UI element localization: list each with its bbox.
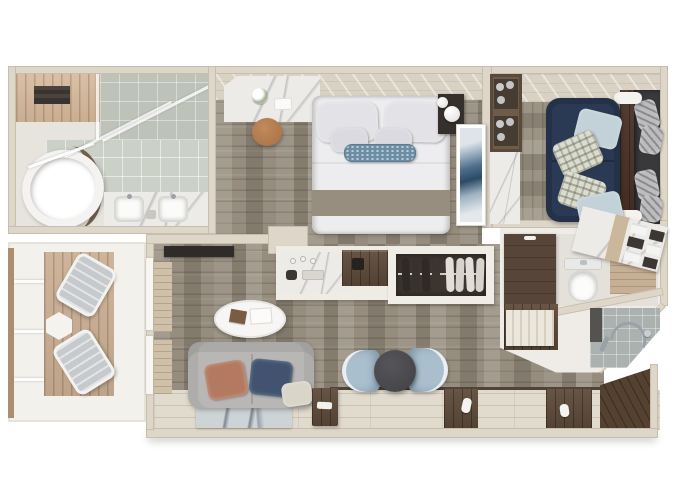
glassware-2 bbox=[506, 81, 514, 89]
coffee-table-magazine bbox=[249, 307, 272, 324]
vanity-book bbox=[274, 98, 293, 111]
counter-glass-1 bbox=[290, 258, 296, 264]
floor-plan-render bbox=[0, 0, 680, 486]
wall-right-lower bbox=[650, 364, 658, 432]
sink-right bbox=[158, 196, 188, 222]
counter-glass-3 bbox=[310, 258, 316, 264]
dining-table bbox=[374, 350, 416, 392]
wall-bathroom-left bbox=[8, 66, 16, 234]
shower-bench bbox=[590, 308, 602, 342]
slippers-2 bbox=[559, 403, 570, 417]
balcony-glass-rail-2 bbox=[14, 330, 44, 333]
towel-dark-2 bbox=[649, 229, 665, 242]
wardrobe bbox=[504, 234, 556, 306]
wall-art bbox=[456, 124, 486, 226]
counter-glass-2 bbox=[300, 256, 306, 262]
window-frame-balcony-2 bbox=[146, 336, 153, 394]
glassware-6 bbox=[497, 133, 505, 141]
pillow-terracotta bbox=[203, 359, 249, 401]
counter-tray bbox=[302, 270, 324, 280]
balcony-glass-rail-1 bbox=[14, 280, 44, 283]
wall-bathroom-bottom bbox=[8, 226, 216, 234]
garment-light-4 bbox=[475, 258, 484, 292]
glassware-1 bbox=[496, 83, 504, 91]
faucet-left bbox=[127, 194, 132, 199]
globe-lamp-large bbox=[444, 106, 460, 122]
bed-runner bbox=[312, 190, 450, 216]
chaise-pillow-4 bbox=[638, 195, 663, 224]
towel-dark-3 bbox=[642, 256, 658, 269]
towel-dark-1 bbox=[627, 236, 645, 250]
wall-bathroom-right bbox=[208, 66, 216, 234]
tv-screen bbox=[164, 246, 234, 257]
towel-white-2 bbox=[623, 250, 641, 264]
vestibule-cabinet bbox=[506, 310, 554, 346]
wall-bottom bbox=[146, 428, 658, 438]
balcony-rail-post bbox=[8, 248, 14, 418]
chaise-armrest-top bbox=[614, 92, 642, 104]
counter-kettle bbox=[286, 270, 297, 280]
toilet-flush-button bbox=[580, 260, 587, 265]
shower-head bbox=[644, 330, 651, 337]
garment-dark-1 bbox=[401, 258, 411, 292]
garment-light-1 bbox=[445, 257, 454, 292]
glassware-3 bbox=[497, 96, 505, 104]
vanity-tray bbox=[146, 210, 156, 219]
bed-accent-pillow bbox=[344, 144, 416, 162]
remote-control bbox=[317, 402, 332, 410]
glassware-shelving bbox=[490, 74, 522, 152]
balcony-glass-rail-3 bbox=[14, 378, 44, 381]
espresso-machine bbox=[352, 258, 364, 270]
toilet-bowl bbox=[568, 270, 598, 302]
towel-white-1 bbox=[630, 222, 648, 236]
towel-white-3 bbox=[645, 243, 661, 256]
globe-lamp-small bbox=[437, 97, 448, 108]
vanity-stool bbox=[252, 118, 282, 146]
window-console bbox=[620, 90, 634, 224]
window-bench-1 bbox=[154, 262, 172, 332]
ceiling-vent bbox=[34, 86, 70, 104]
garment-dark-2 bbox=[411, 257, 420, 292]
marble-column bbox=[490, 152, 520, 224]
garment-light-2 bbox=[455, 258, 464, 292]
duvet-fold-line bbox=[312, 162, 450, 164]
wall-art-canvas bbox=[460, 128, 482, 222]
sink-left bbox=[114, 196, 144, 222]
wall-top bbox=[8, 66, 668, 74]
vanity-flowers bbox=[252, 88, 268, 104]
glassware-4 bbox=[496, 120, 504, 128]
glass-partition-frame bbox=[96, 74, 99, 140]
garment-dark-3 bbox=[421, 258, 430, 292]
wall-right-upper bbox=[660, 66, 668, 306]
vanity-desk bbox=[224, 76, 320, 122]
window-frame-balcony bbox=[146, 258, 153, 330]
pillow-cream bbox=[280, 380, 313, 408]
counter-wood-hutch bbox=[342, 250, 392, 286]
glassware-5 bbox=[506, 118, 514, 126]
window-bench-2 bbox=[154, 340, 172, 394]
coffee-table-book bbox=[229, 309, 247, 325]
faucet-right bbox=[171, 194, 176, 199]
wardrobe-handle bbox=[524, 236, 536, 240]
